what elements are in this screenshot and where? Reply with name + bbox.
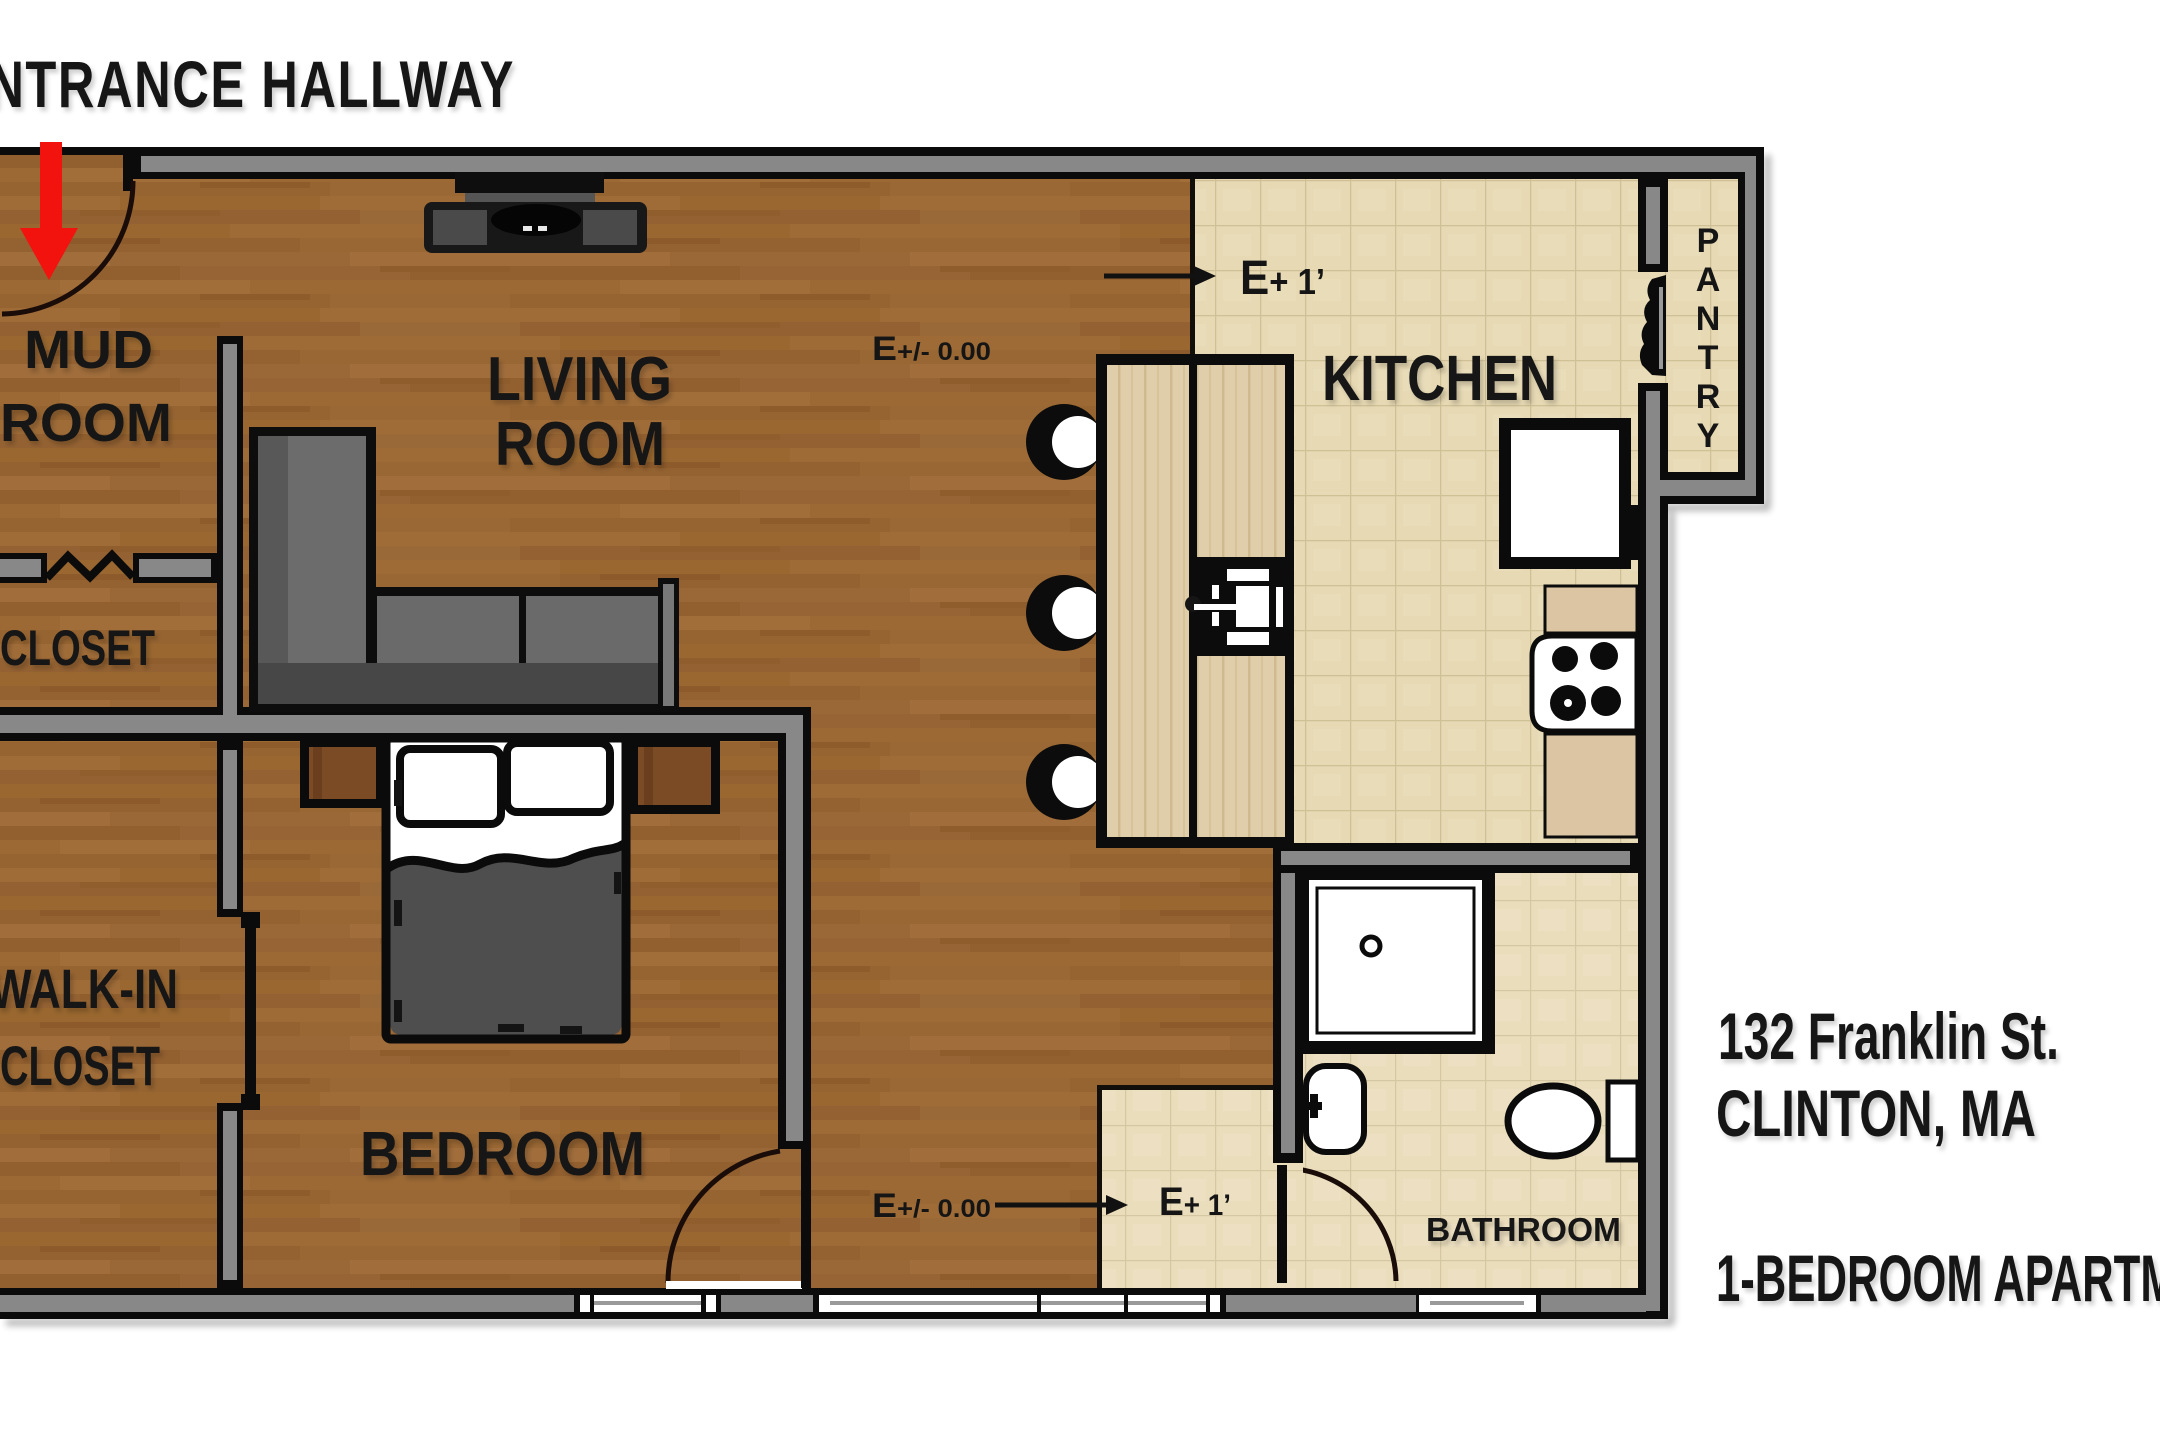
svg-text:P: P bbox=[1697, 222, 1720, 260]
svg-text:ROOM: ROOM bbox=[495, 410, 665, 479]
svg-text:T: T bbox=[1698, 339, 1719, 377]
svg-text:R: R bbox=[1696, 378, 1721, 416]
svg-text:A: A bbox=[1696, 261, 1721, 299]
svg-text:1-BEDROOM APARTMENT: 1-BEDROOM APARTMENT bbox=[1716, 1241, 2160, 1315]
svg-text:CLINTON, MA: CLINTON, MA bbox=[1716, 1076, 2036, 1150]
svg-text:KITCHEN: KITCHEN bbox=[1322, 342, 1557, 414]
svg-text:Y: Y bbox=[1697, 417, 1720, 455]
svg-text:ROOM: ROOM bbox=[0, 393, 172, 453]
svg-text:BEDROOM: BEDROOM bbox=[360, 1120, 645, 1189]
svg-text:LIVING: LIVING bbox=[487, 345, 672, 414]
svg-text:N: N bbox=[1696, 300, 1721, 338]
svg-text:CLOSET: CLOSET bbox=[0, 1034, 160, 1097]
svg-text:MUD: MUD bbox=[24, 320, 153, 380]
svg-text:CLOSET: CLOSET bbox=[0, 620, 155, 676]
svg-text:132 Franklin St.: 132 Franklin St. bbox=[1718, 999, 2059, 1073]
svg-text:WALK-IN: WALK-IN bbox=[0, 957, 178, 1020]
svg-text:ENTRANCE HALLWAY: ENTRANCE HALLWAY bbox=[0, 47, 515, 121]
svg-text:BATHROOM: BATHROOM bbox=[1426, 1211, 1621, 1248]
